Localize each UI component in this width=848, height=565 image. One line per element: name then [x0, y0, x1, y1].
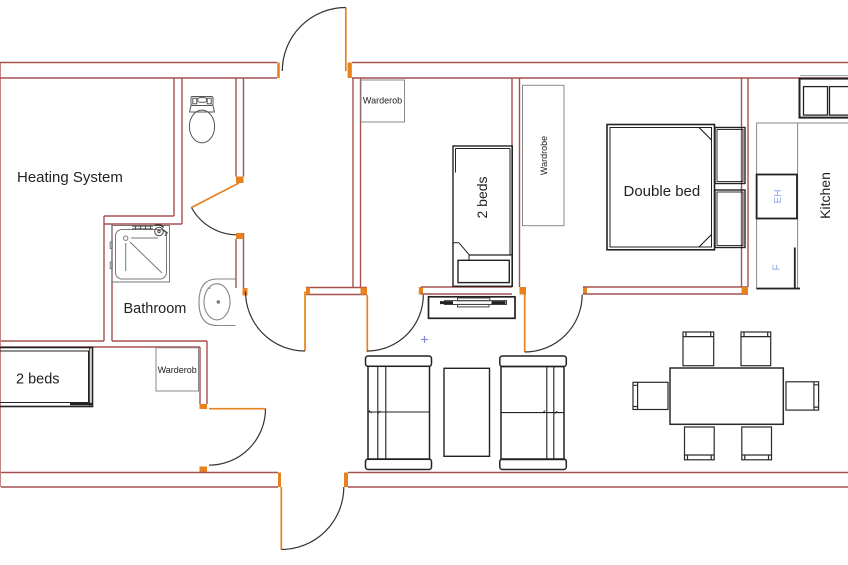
svg-text:F: F — [772, 264, 783, 270]
svg-text:Heating System: Heating System — [17, 169, 123, 186]
svg-text:Warderob: Warderob — [363, 96, 402, 106]
svg-text:2 beds: 2 beds — [474, 176, 490, 218]
svg-text:Kitchen: Kitchen — [817, 172, 833, 219]
svg-text:2 beds: 2 beds — [16, 372, 60, 388]
svg-text:Bathroom: Bathroom — [124, 301, 187, 317]
svg-text:EH: EH — [773, 190, 784, 204]
svg-text:Warderob: Warderob — [158, 365, 197, 375]
svg-text:Double bed: Double bed — [624, 183, 701, 200]
svg-text:Wardrobe: Wardrobe — [539, 136, 549, 175]
